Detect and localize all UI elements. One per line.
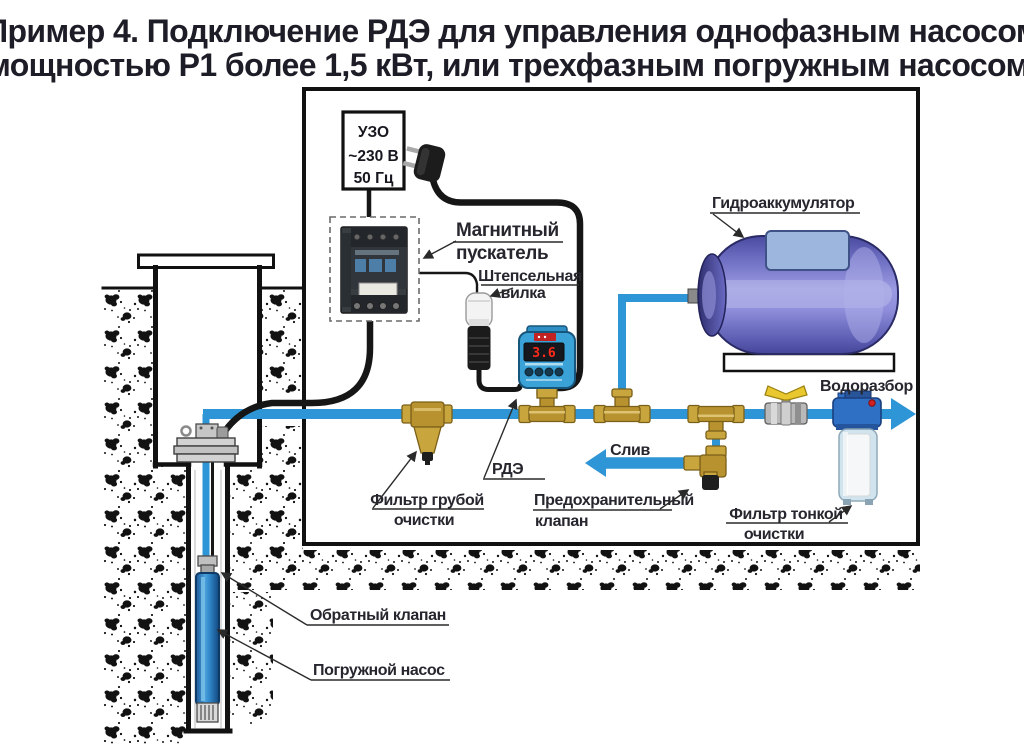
well-cap [139,255,274,268]
uzo-voltage: ~230 В [348,148,398,165]
magnetic-starter [330,217,419,321]
tank-top-plate [766,231,849,270]
diagram-canvas: УЗО ~230 В 50 Гц 3.6 [0,0,1024,752]
title: Пример 4. Подключение РДЭ для управления… [0,13,1024,83]
rde-display-value: 3.6 [532,346,556,361]
title-line-2: мощностью Р1 более 1,5 кВт, или трехфазн… [0,47,1024,83]
check-valve-fitting [198,556,217,574]
label-rde: РДЭ [492,461,523,478]
label-magnetic-starter-1: Магнитный [456,220,559,241]
label-safety-valve-2: клапан [535,513,588,530]
pump-intake-grille [197,703,218,722]
filter-release-button [869,400,875,406]
tank-stand [724,354,894,371]
uzo-title: УЗО [358,124,389,141]
rde-button [525,368,533,376]
label-water-outlet: Водоразбор [820,378,914,395]
label-submersible-pump: Погружной насос [313,662,445,679]
label-plug-1: Штепсельная [478,268,582,285]
uzo-box: УЗО ~230 В 50 Гц [343,112,404,189]
rde-button [545,368,553,376]
label-fine-filter-1: Фильтр тонкой [729,506,842,523]
label-coarse-filter-2: очистки [394,512,454,529]
label-coarse-filter-1: Фильтр грубой [370,492,484,509]
label-check-valve: Обратный клапан [310,607,446,624]
title-line-1: Пример 4. Подключение РДЭ для управления… [0,13,1024,49]
rde-device: 3.6 [519,326,575,398]
label-hydroaccumulator: Гидроаккумулятор [712,195,855,212]
schematic-page: УЗО ~230 В 50 Гц 3.6 [0,0,1024,752]
label-drain: Слив [610,442,650,459]
label-fine-filter-2: очистки [744,526,804,543]
label-safety-valve-1: Предохранительный [534,492,694,509]
label-magnetic-starter-2: пускатель [456,243,548,264]
fine-filter [833,391,881,505]
rde-button [535,368,543,376]
uzo-frequency: 50 Гц [354,170,394,187]
plug-socket [466,293,492,370]
label-plug-2: вилка [501,285,546,302]
submersible-pump [196,573,219,722]
rde-button [555,368,563,376]
